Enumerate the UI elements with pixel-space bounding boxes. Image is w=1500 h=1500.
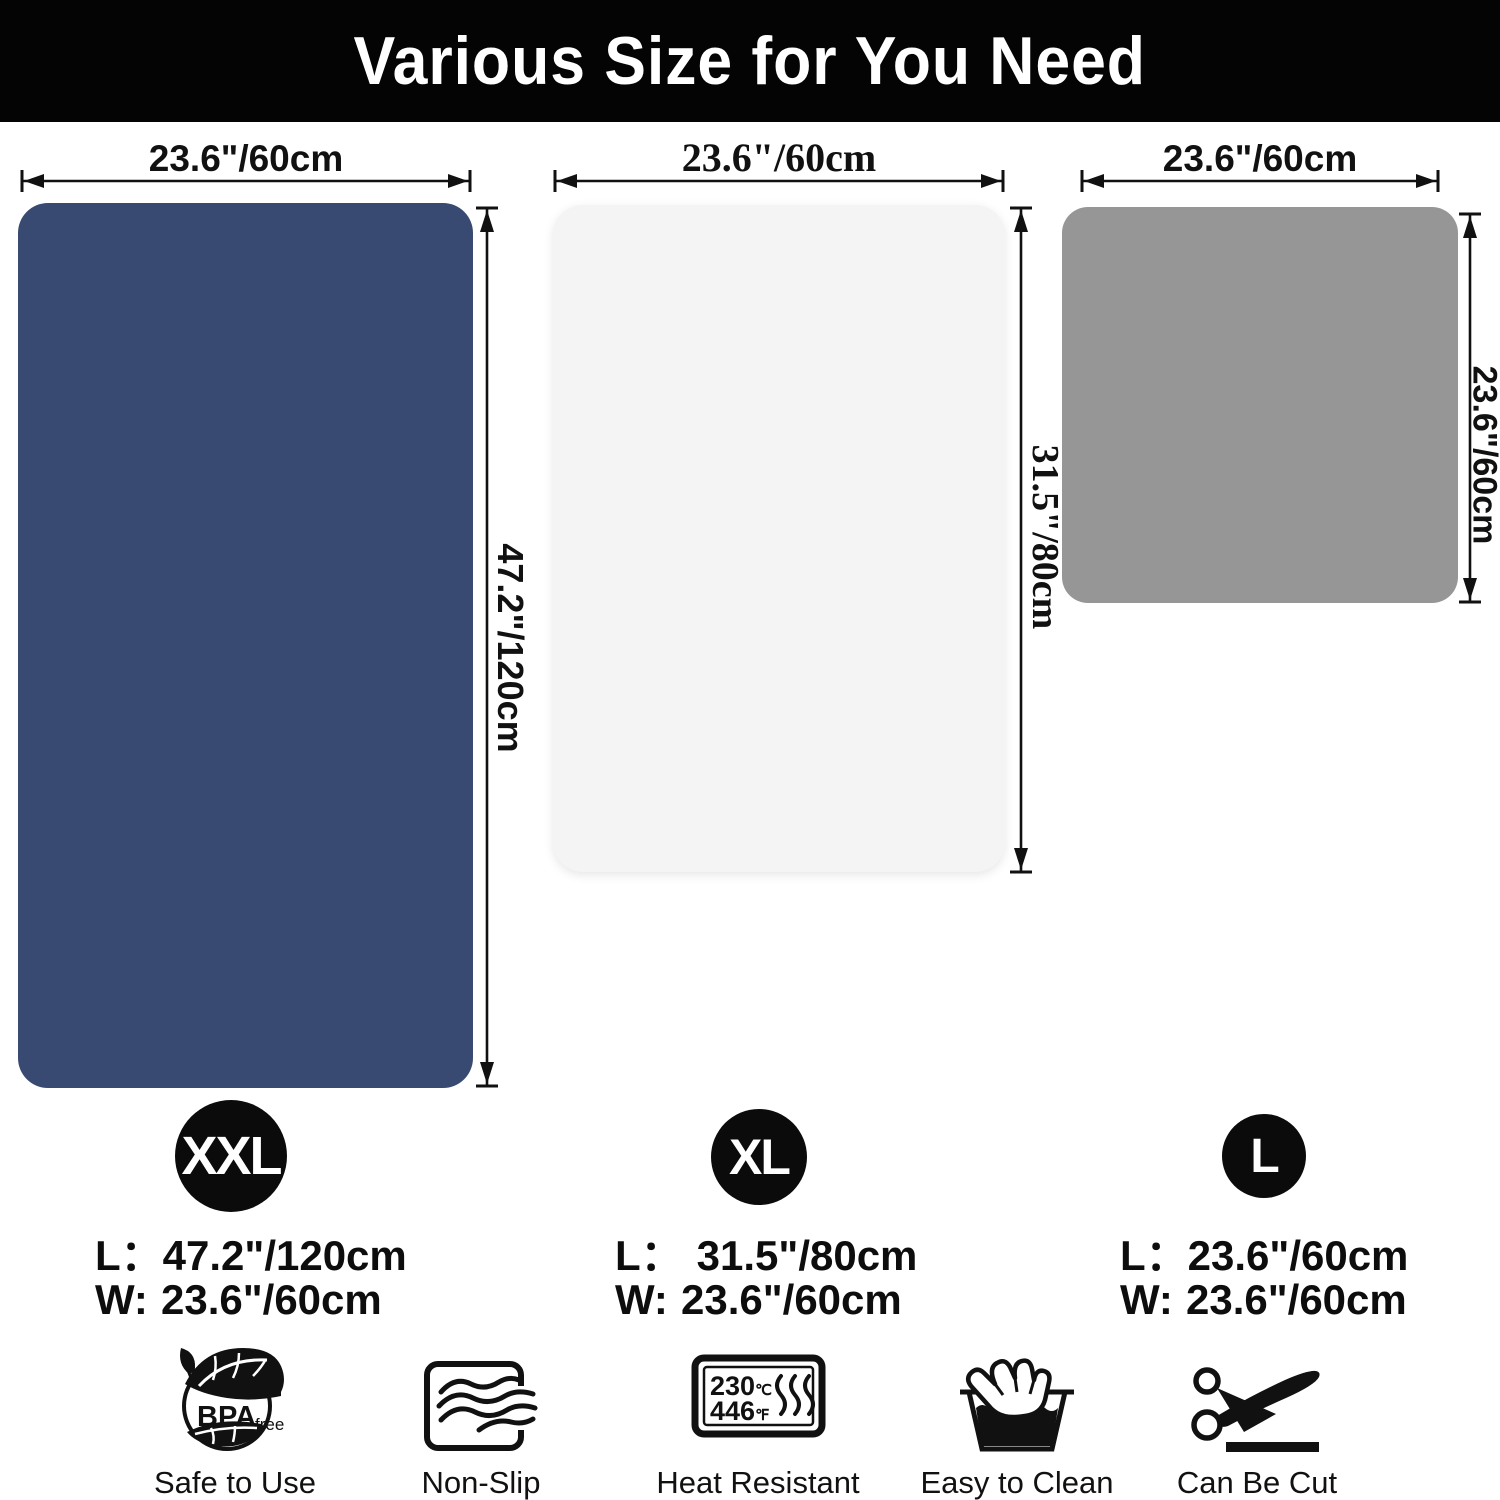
l-length-value: 23.6"/60cm [1188, 1232, 1409, 1279]
l-side-dimension-label: 23.6"/60cm [1465, 366, 1500, 545]
feature-safe-to-use: BPA free Safe to Use [105, 1336, 365, 1500]
xxl-width-spec: W:23.6"/60cm [95, 1276, 382, 1324]
temp-celsius-unit: ℃ [755, 1382, 772, 1399]
can-be-cut-icon [1190, 1336, 1325, 1456]
xl-size-badge: XL [711, 1109, 807, 1205]
xxl-length-value: 47.2"/120cm [163, 1232, 407, 1279]
l-length-label: L： [1120, 1222, 1188, 1283]
feature-can-be-cut: Can Be Cut [1127, 1336, 1387, 1500]
feature-easy-to-clean: Easy to Clean [887, 1336, 1147, 1500]
temp-fahrenheit-value: 446 [710, 1396, 755, 1426]
feature-label: Heat Resistant [656, 1465, 859, 1500]
xl-mat [553, 205, 1005, 872]
l-mat [1062, 207, 1458, 603]
xxl-mat [18, 203, 473, 1088]
xl-length-value: 31.5"/80cm [697, 1232, 918, 1279]
xl-top-dimension-arrow [553, 168, 1005, 194]
xxl-length-spec: L：47.2"/120cm [95, 1222, 407, 1283]
xxl-side-dimension-label: 47.2"/120cm [489, 543, 531, 752]
xl-side-dimension-label: 31.5"/80cm [1023, 445, 1067, 630]
xxl-width-label: W: [95, 1276, 161, 1324]
xl-length-spec: L：31.5"/80cm [615, 1222, 917, 1283]
temp-fahrenheit-unit: ℉ [755, 1407, 769, 1424]
xl-width-label: W: [615, 1276, 681, 1324]
xxl-top-dimension-arrow [20, 168, 472, 194]
feature-label: Safe to Use [154, 1465, 316, 1500]
xl-width-value: 23.6"/60cm [681, 1276, 902, 1323]
feature-label: Easy to Clean [921, 1465, 1114, 1500]
heat-resistant-icon: 230℃ 446℉ [691, 1336, 826, 1456]
xl-width-spec: W:23.6"/60cm [615, 1276, 902, 1324]
non-slip-icon [421, 1336, 541, 1456]
l-size-badge: L [1222, 1114, 1306, 1198]
infographic-page: Various Size for You Need 23.6"/60cm 47.… [0, 0, 1500, 1500]
page-title: Various Size for You Need [354, 22, 1146, 100]
l-length-spec: L：23.6"/60cm [1120, 1222, 1408, 1283]
xxl-width-value: 23.6"/60cm [161, 1276, 382, 1323]
feature-heat-resistant: 230℃ 446℉ Heat Resistant [628, 1336, 888, 1500]
bpa-free-icon: BPA free [169, 1336, 301, 1456]
easy-to-clean-icon [955, 1336, 1079, 1456]
feature-label: Can Be Cut [1177, 1465, 1337, 1500]
xxl-length-label: L： [95, 1222, 163, 1283]
header-banner: Various Size for You Need [0, 0, 1500, 122]
l-width-spec: W:23.6"/60cm [1120, 1276, 1407, 1324]
feature-non-slip: Non-Slip [351, 1336, 611, 1500]
feature-label: Non-Slip [422, 1465, 541, 1500]
l-top-dimension-arrow [1080, 168, 1440, 194]
l-width-label: W: [1120, 1276, 1186, 1324]
l-width-value: 23.6"/60cm [1186, 1276, 1407, 1323]
xl-length-label: L： [615, 1222, 683, 1283]
xxl-size-badge: XXL [175, 1100, 287, 1212]
